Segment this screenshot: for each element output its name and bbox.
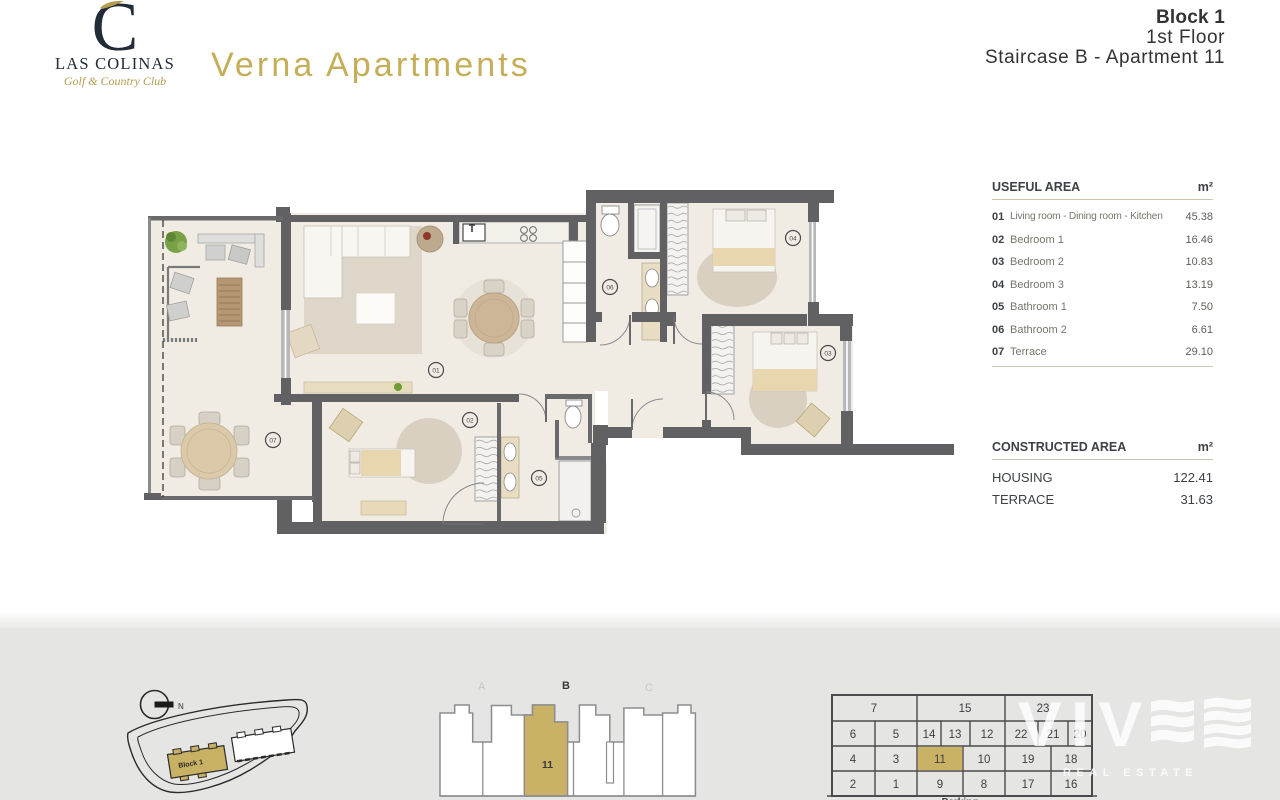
svg-text:14: 14 bbox=[923, 729, 936, 741]
svg-text:15: 15 bbox=[959, 703, 972, 715]
svg-text:13: 13 bbox=[949, 729, 962, 741]
svg-text:03: 03 bbox=[824, 351, 832, 358]
svg-text:C: C bbox=[645, 682, 653, 694]
svg-text:5: 5 bbox=[893, 729, 899, 741]
svg-text:A: A bbox=[478, 681, 486, 693]
svg-text:8: 8 bbox=[981, 779, 987, 791]
svg-text:VIV: VIV bbox=[1018, 690, 1152, 760]
svg-text:01: 01 bbox=[432, 368, 440, 375]
svg-text:6: 6 bbox=[850, 729, 856, 741]
svg-text:2: 2 bbox=[850, 779, 856, 791]
svg-text:02: 02 bbox=[466, 418, 474, 425]
svg-text:3: 3 bbox=[893, 754, 899, 766]
svg-text:10: 10 bbox=[978, 754, 991, 766]
svg-text:05: 05 bbox=[535, 476, 543, 483]
svg-text:1: 1 bbox=[893, 779, 899, 791]
svg-text:11: 11 bbox=[542, 759, 553, 771]
svg-text:11: 11 bbox=[934, 754, 946, 766]
svg-text:N: N bbox=[178, 702, 184, 711]
svg-text:7: 7 bbox=[871, 703, 877, 715]
svg-text:4: 4 bbox=[850, 754, 857, 766]
svg-text:REAL ESTATE: REAL ESTATE bbox=[1063, 767, 1198, 779]
svg-text:04: 04 bbox=[789, 236, 797, 243]
svg-text:9: 9 bbox=[937, 779, 943, 791]
svg-text:B: B bbox=[562, 680, 570, 692]
svg-text:12: 12 bbox=[981, 729, 994, 741]
svg-text:06: 06 bbox=[606, 285, 614, 292]
svg-text:07: 07 bbox=[269, 438, 277, 445]
